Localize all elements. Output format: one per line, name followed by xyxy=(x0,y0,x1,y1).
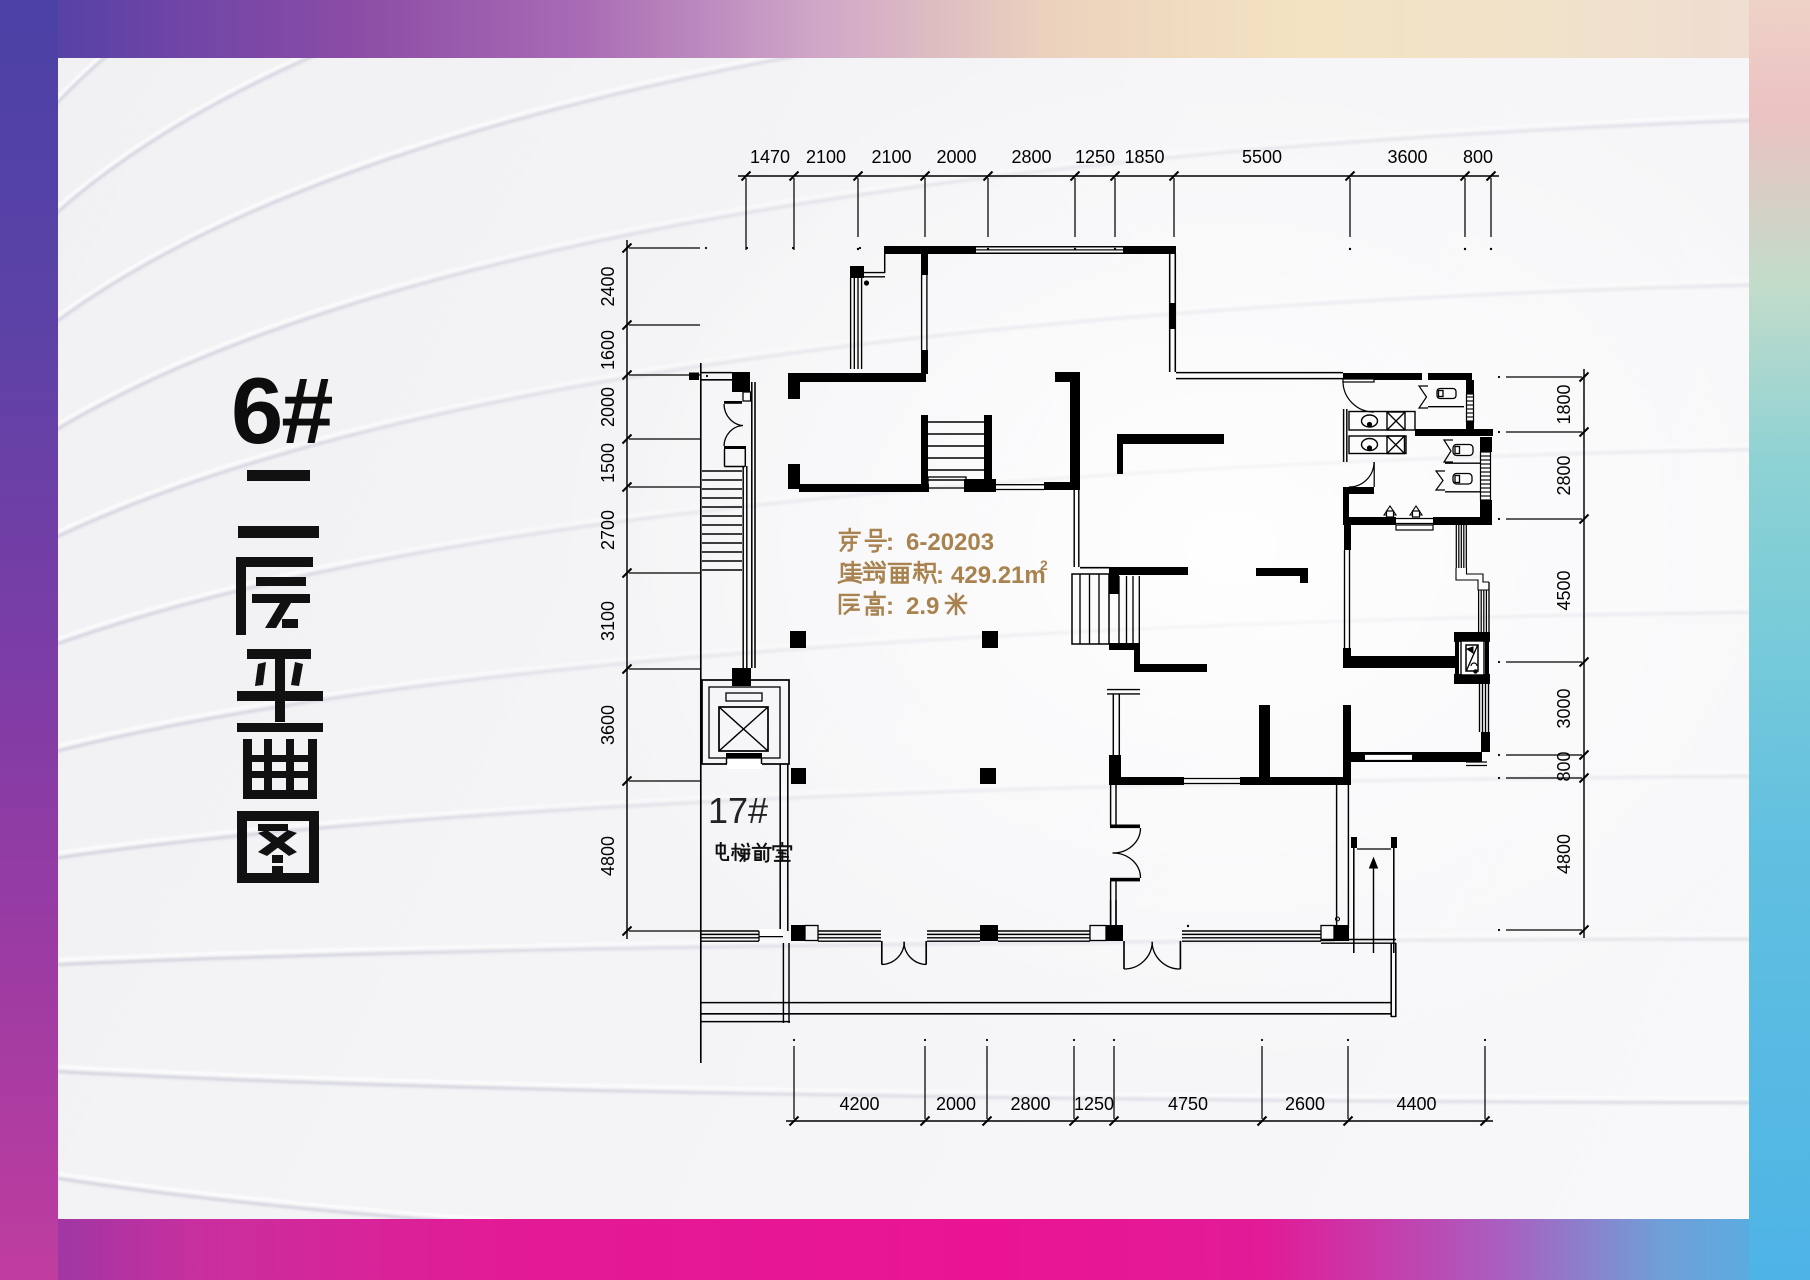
svg-text:429.21m: 429.21m xyxy=(951,562,1046,589)
svg-text:2.9: 2.9 xyxy=(906,593,939,620)
svg-text:1250: 1250 xyxy=(1075,147,1115,167)
svg-text:1500: 1500 xyxy=(598,443,618,483)
svg-text::: : xyxy=(886,593,894,620)
svg-text:4400: 4400 xyxy=(1396,1094,1436,1114)
svg-text:5500: 5500 xyxy=(1242,147,1282,167)
svg-text:2800: 2800 xyxy=(1010,1094,1050,1114)
svg-text:800: 800 xyxy=(1554,751,1574,781)
svg-text:2100: 2100 xyxy=(806,147,846,167)
svg-text:4800: 4800 xyxy=(1554,834,1574,874)
svg-text:3000: 3000 xyxy=(1554,688,1574,728)
svg-text:3600: 3600 xyxy=(1387,147,1427,167)
svg-text:3100: 3100 xyxy=(598,601,618,641)
svg-text:1850: 1850 xyxy=(1124,147,1164,167)
svg-text::: : xyxy=(886,529,894,556)
svg-text:6-20203: 6-20203 xyxy=(906,529,994,556)
svg-text:4500: 4500 xyxy=(1554,570,1574,610)
svg-text:2000: 2000 xyxy=(936,1094,976,1114)
svg-text::: : xyxy=(936,562,944,589)
svg-text:2700: 2700 xyxy=(598,510,618,550)
svg-text:2800: 2800 xyxy=(1554,455,1574,495)
svg-text:800: 800 xyxy=(1463,147,1493,167)
svg-text:2: 2 xyxy=(1040,557,1048,573)
svg-text:1800: 1800 xyxy=(1554,384,1574,424)
svg-text:2000: 2000 xyxy=(936,147,976,167)
svg-text:17#: 17# xyxy=(708,790,768,831)
svg-text:4200: 4200 xyxy=(839,1094,879,1114)
svg-text:2600: 2600 xyxy=(1285,1094,1325,1114)
svg-text:2800: 2800 xyxy=(1011,147,1051,167)
svg-text:4750: 4750 xyxy=(1168,1094,1208,1114)
svg-text:2100: 2100 xyxy=(871,147,911,167)
svg-text:4800: 4800 xyxy=(598,836,618,876)
svg-text:1250: 1250 xyxy=(1074,1094,1114,1114)
svg-text:2000: 2000 xyxy=(598,387,618,427)
svg-text:1600: 1600 xyxy=(598,330,618,370)
svg-text:3600: 3600 xyxy=(598,705,618,745)
svg-text:6#: 6# xyxy=(231,358,332,463)
svg-text:1470: 1470 xyxy=(750,147,790,167)
svg-text:2400: 2400 xyxy=(598,266,618,306)
